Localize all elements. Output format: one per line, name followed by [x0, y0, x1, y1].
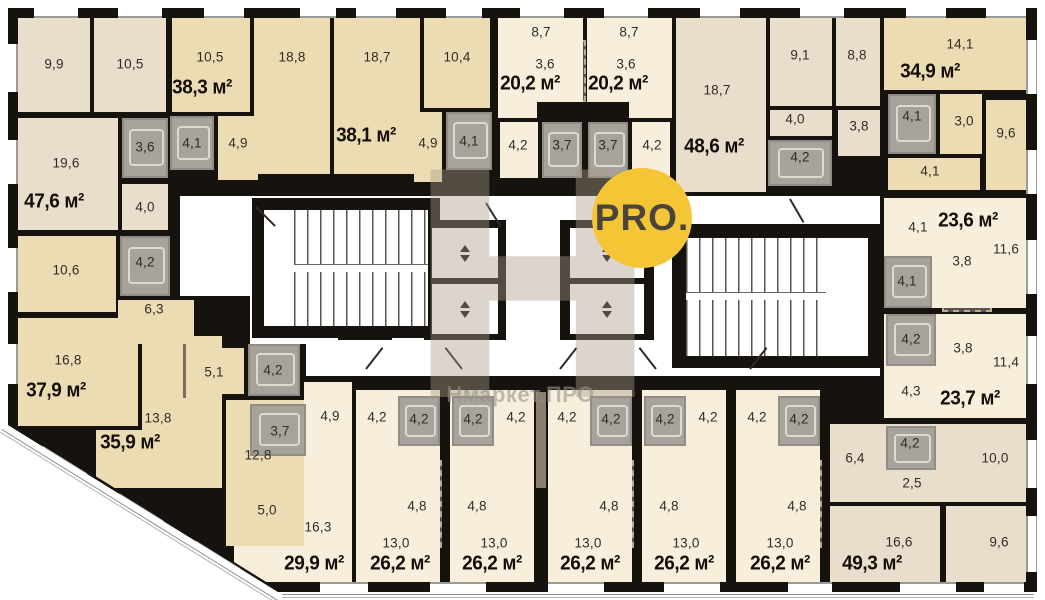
- window: [6, 344, 18, 384]
- watermark-brand-text: Нмаркет.ПРО: [398, 382, 643, 408]
- label-area: 4,2: [747, 410, 766, 425]
- label-area: 16,6: [885, 535, 912, 550]
- label-unit-total: 23,7 м²: [940, 387, 1000, 411]
- window: [300, 6, 336, 18]
- label-area: 4,8: [659, 499, 678, 514]
- label-area: 3,6: [135, 140, 154, 155]
- label-area: 10,0: [981, 451, 1008, 466]
- label-area: 10,5: [196, 50, 223, 65]
- label-area: 4,8: [787, 499, 806, 514]
- label-area: 4,9: [228, 136, 247, 151]
- room-349-bath: [888, 94, 936, 154]
- label-unit-total: 47,6 м²: [24, 190, 84, 214]
- label-area: 18,7: [703, 83, 730, 98]
- label-area: 4,2: [367, 410, 386, 425]
- room-349-room: [986, 100, 1026, 190]
- window: [446, 6, 482, 18]
- label-unit-total: 26,2 м²: [654, 552, 714, 576]
- label-area: 4,2: [901, 332, 920, 347]
- label-area: 9,9: [44, 57, 63, 72]
- window: [800, 6, 844, 18]
- label-area: 4,8: [407, 499, 426, 514]
- window: [34, 6, 78, 18]
- room-383-room2: [254, 18, 330, 174]
- label-area: 5,1: [204, 365, 223, 380]
- label-unit-total: 23,6 м²: [938, 209, 998, 233]
- label-area: 13,0: [672, 536, 699, 551]
- window: [6, 140, 18, 184]
- window: [700, 6, 740, 18]
- label-area: 4,0: [785, 112, 804, 127]
- watermark-logo-text: PRO.: [595, 197, 689, 239]
- label-area: 8,7: [619, 25, 638, 40]
- label-area: 3,0: [954, 114, 973, 129]
- label-area: 4,2: [135, 255, 154, 270]
- label-unit-total: 35,9 м²: [100, 431, 160, 455]
- window: [1026, 150, 1038, 194]
- label-area: 3,8: [952, 254, 971, 269]
- label-area: 4,9: [320, 409, 339, 424]
- window: [986, 6, 1026, 18]
- label-area: 6,4: [845, 451, 864, 466]
- room-493-room2: [946, 506, 1026, 582]
- label-unit-total: 49,3 м²: [842, 552, 902, 576]
- label-area: 4,1: [182, 136, 201, 151]
- window: [900, 582, 956, 594]
- label-area: 8,7: [531, 25, 550, 40]
- label-area: 19,6: [52, 156, 79, 171]
- label-area: 9,1: [790, 48, 809, 63]
- label-area: 14,1: [946, 37, 973, 52]
- label-area: 13,0: [480, 536, 507, 551]
- parapet-line: [282, 594, 1034, 598]
- window: [6, 248, 18, 292]
- window: [1026, 240, 1038, 294]
- window: [1026, 440, 1038, 488]
- label-area: 12,8: [244, 448, 271, 463]
- label-area: 4,2: [698, 410, 717, 425]
- label-area: 4,1: [897, 274, 916, 289]
- label-area: 4,1: [920, 164, 939, 179]
- window: [356, 6, 396, 18]
- window: [520, 6, 564, 18]
- room-299-hall: [304, 382, 352, 412]
- corridor-west: [180, 196, 250, 296]
- window: [1026, 516, 1038, 572]
- label-area: 4,8: [599, 499, 618, 514]
- label-area: 4,0: [135, 200, 154, 215]
- label-area: 4,2: [263, 363, 282, 378]
- label-unit-total: 38,1 м²: [336, 124, 396, 148]
- window: [118, 6, 162, 18]
- label-area: 10,5: [116, 57, 143, 72]
- label-unit-total: 20,2 м²: [588, 72, 648, 96]
- label-unit-total: 48,6 м²: [684, 135, 744, 159]
- label-area: 3,8: [849, 119, 868, 134]
- label-unit-total: 37,9 м²: [26, 379, 86, 403]
- label-area: 9,6: [996, 126, 1015, 141]
- label-unit-total: 34,9 м²: [900, 60, 960, 84]
- label-area: 2,5: [902, 476, 921, 491]
- label-area: 3,8: [953, 341, 972, 356]
- label-area: 13,0: [382, 536, 409, 551]
- label-area: 9,6: [989, 535, 1008, 550]
- label-unit-total: 26,2 м²: [370, 552, 430, 576]
- label-area: 11,4: [993, 355, 1019, 370]
- label-area: 4,2: [789, 412, 808, 427]
- label-area: 13,8: [144, 411, 171, 426]
- stair-landing: [686, 292, 826, 300]
- room-486-living: [676, 18, 766, 192]
- window: [548, 582, 604, 594]
- label-area: 16,8: [54, 353, 81, 368]
- window: [115, 493, 164, 528]
- room-379-living: [18, 318, 138, 426]
- label-unit-total: 38,3 м²: [172, 76, 232, 100]
- label-area: 5,0: [257, 503, 276, 518]
- label-area: 18,8: [278, 50, 305, 65]
- label-area: 10,6: [52, 263, 79, 278]
- window: [1026, 40, 1038, 94]
- window: [1026, 336, 1038, 384]
- watermark-logo-circle: PRO.: [592, 168, 692, 268]
- label-area: 4,1: [908, 220, 927, 235]
- window: [191, 541, 240, 576]
- label-area: 18,7: [363, 50, 390, 65]
- window: [6, 44, 18, 92]
- window: [906, 6, 946, 18]
- window: [604, 6, 648, 18]
- label-unit-total: 26,2 м²: [560, 552, 620, 576]
- label-area: 8,8: [847, 48, 866, 63]
- window: [204, 6, 244, 18]
- label-area: 13,0: [574, 536, 601, 551]
- window: [38, 446, 87, 481]
- label-unit-total: 26,2 м²: [750, 552, 810, 576]
- label-area: 3,6: [535, 57, 554, 72]
- label-area: 4,1: [902, 109, 921, 124]
- label-area: 3,7: [270, 424, 289, 439]
- floor-plan: 9,9 10,5 19,6 3,6 4,0 47,6 м² 10,5 18,8 …: [0, 0, 1045, 600]
- label-area: 4,3: [901, 384, 920, 399]
- label-area: 13,0: [766, 536, 793, 551]
- label-area: 6,3: [144, 302, 163, 317]
- label-area: 3,6: [616, 57, 635, 72]
- window: [664, 582, 720, 594]
- label-unit-total: 20,2 м²: [500, 72, 560, 96]
- label-area: 11,6: [993, 242, 1019, 257]
- partition: [183, 344, 186, 398]
- label-area: 4,2: [790, 150, 809, 165]
- label-area: 4,2: [900, 436, 919, 451]
- window: [320, 582, 368, 594]
- label-area: 4,8: [467, 499, 486, 514]
- label-area: 16,3: [304, 520, 331, 535]
- label-area: 10,4: [443, 50, 470, 65]
- label-unit-total: 26,2 м²: [462, 552, 522, 576]
- window: [788, 582, 832, 594]
- window: [430, 582, 486, 594]
- label-unit-total: 29,9 м²: [284, 552, 344, 576]
- window: [984, 582, 1024, 594]
